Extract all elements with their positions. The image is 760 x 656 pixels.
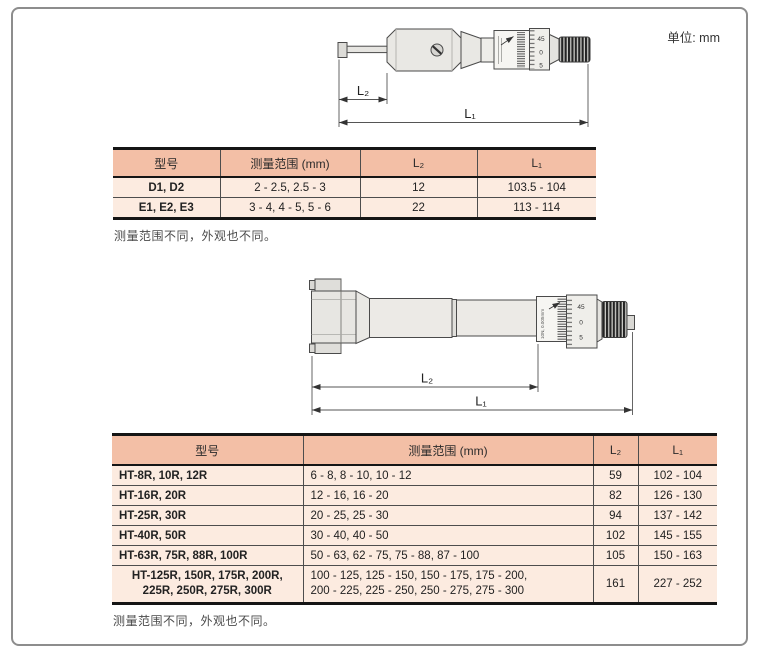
- neck-taper: [461, 32, 481, 69]
- cell-range: 2 - 2.5, 2.5 - 3: [220, 177, 360, 198]
- cell-model: HT-8R, 10R, 12R: [112, 465, 303, 486]
- thimble: 45 0 5: [530, 29, 550, 71]
- header-model: 型号: [113, 149, 220, 178]
- ratchet-knob: [559, 37, 590, 62]
- cell-model: E1, E2, E3: [113, 198, 220, 219]
- cell-model: HT-16R, 20R: [112, 486, 303, 506]
- cell-model: HT-40R, 50R: [112, 526, 303, 546]
- table-small-models: 型号 测量范围 (mm) L₂ L₁ D1, D2 2 - 2.5, 2.5 -…: [113, 147, 596, 220]
- table-row: D1, D2 2 - 2.5, 2.5 - 3 12 103.5 - 104: [113, 177, 596, 198]
- thimble-scale-0: 0: [539, 50, 543, 57]
- measuring-head: [310, 279, 357, 354]
- cell-model: D1, D2: [113, 177, 220, 198]
- table-row: E1, E2, E3 3 - 4, 4 - 5, 5 - 6 22 113 - …: [113, 198, 596, 219]
- diagram-bore-micrometer: 45 0 5 L₂ L₁: [330, 12, 600, 137]
- catalog-page: 单位: mm: [0, 0, 760, 656]
- cell-range: 12 - 16, 16 - 20: [303, 486, 593, 506]
- cell-l2: 22: [360, 198, 477, 219]
- body-tube: [370, 299, 453, 338]
- ratchet-knob: [602, 302, 627, 338]
- thimble-scale-5: 5: [539, 63, 543, 70]
- thimble-scale-45: 45: [537, 36, 545, 43]
- cell-l1: 145 - 155: [638, 526, 717, 546]
- dim-label-l1: L₁: [475, 394, 487, 409]
- body-tube-rear: [457, 300, 537, 336]
- thimble-scale-0: 0: [579, 320, 583, 327]
- table-note: 测量范围不同，外观也不同。: [113, 612, 276, 629]
- sleeve-scale: 10N, 0.005mm: [537, 297, 567, 342]
- cell-model: HT-125R, 150R, 175R, 200R, 225R, 250R, 2…: [112, 566, 303, 604]
- cell-l2: 161: [593, 566, 638, 604]
- table-row: HT-16R, 20R 12 - 16, 16 - 20 82 126 - 13…: [112, 486, 717, 506]
- table-row: HT-63R, 75R, 88R, 100R 50 - 63, 62 - 75,…: [112, 546, 717, 566]
- table-note: 测量范围不同，外观也不同。: [114, 227, 277, 244]
- micrometer-probe: [338, 43, 388, 58]
- table-row: HT-125R, 150R, 175R, 200R, 225R, 250R, 2…: [112, 566, 717, 604]
- cell-range: 100 - 125, 125 - 150, 150 - 175, 175 - 2…: [303, 566, 593, 604]
- tube-joint: [452, 300, 457, 337]
- cell-range: 50 - 63, 62 - 75, 75 - 88, 87 - 100: [303, 546, 593, 566]
- cell-l1: 113 - 114: [477, 198, 596, 219]
- table-row: HT-25R, 30R 20 - 25, 25 - 30 94 137 - 14…: [112, 506, 717, 526]
- ratchet-tip: [627, 316, 635, 330]
- header-l2: L₂: [593, 435, 638, 466]
- clamp-screw: [431, 44, 443, 56]
- header-range: 测量范围 (mm): [303, 435, 593, 466]
- cell-range: 3 - 4, 4 - 5, 5 - 6: [220, 198, 360, 219]
- sleeve-marking: 10N, 0.005mm: [540, 309, 545, 339]
- dim-label-l2: L₂: [421, 371, 433, 386]
- thimble-scale-45: 45: [577, 304, 585, 311]
- cell-l1: 102 - 104: [638, 465, 717, 486]
- diagram-three-point-micrometer: 10N, 0.005mm 45 0 5 L₂ L₁: [300, 263, 645, 418]
- step-cylinder: [481, 38, 494, 62]
- dim-label-l2: L₂: [357, 83, 369, 98]
- table-header-row: 型号 测量范围 (mm) L₂ L₁: [112, 435, 717, 466]
- head-taper: [356, 291, 370, 344]
- header-l2: L₂: [360, 149, 477, 178]
- thimble-scale-5: 5: [579, 335, 583, 342]
- dim-label-l1: L₁: [464, 106, 476, 121]
- sleeve-scale: [494, 31, 530, 70]
- table-header-row: 型号 测量范围 (mm) L₂ L₁: [113, 149, 596, 178]
- micrometer-body: [387, 29, 461, 71]
- table-row: HT-8R, 10R, 12R 6 - 8, 8 - 10, 10 - 12 5…: [112, 465, 717, 486]
- header-range: 测量范围 (mm): [220, 149, 360, 178]
- cell-l2: 105: [593, 546, 638, 566]
- cell-l1: 103.5 - 104: [477, 177, 596, 198]
- header-model: 型号: [112, 435, 303, 466]
- unit-label: 单位: mm: [667, 27, 720, 46]
- cell-l2: 59: [593, 465, 638, 486]
- cell-l2: 102: [593, 526, 638, 546]
- thimble: 45 0 5: [567, 295, 598, 348]
- cell-l2: 82: [593, 486, 638, 506]
- cell-l1: 227 - 252: [638, 566, 717, 604]
- cell-range: 30 - 40, 40 - 50: [303, 526, 593, 546]
- cell-model: HT-25R, 30R: [112, 506, 303, 526]
- header-l1: L₁: [477, 149, 596, 178]
- cell-l1: 137 - 142: [638, 506, 717, 526]
- ratchet-cone: [550, 35, 560, 65]
- cell-l1: 150 - 163: [638, 546, 717, 566]
- table-row: HT-40R, 50R 30 - 40, 40 - 50 102 145 - 1…: [112, 526, 717, 546]
- cell-range: 20 - 25, 25 - 30: [303, 506, 593, 526]
- cell-l2: 12: [360, 177, 477, 198]
- ratchet-cone: [597, 299, 602, 342]
- cell-range: 6 - 8, 8 - 10, 10 - 12: [303, 465, 593, 486]
- table-holtest-models: 型号 测量范围 (mm) L₂ L₁ HT-8R, 10R, 12R 6 - 8…: [112, 433, 717, 605]
- cell-l1: 126 - 130: [638, 486, 717, 506]
- cell-l2: 94: [593, 506, 638, 526]
- header-l1: L₁: [638, 435, 717, 466]
- cell-model: HT-63R, 75R, 88R, 100R: [112, 546, 303, 566]
